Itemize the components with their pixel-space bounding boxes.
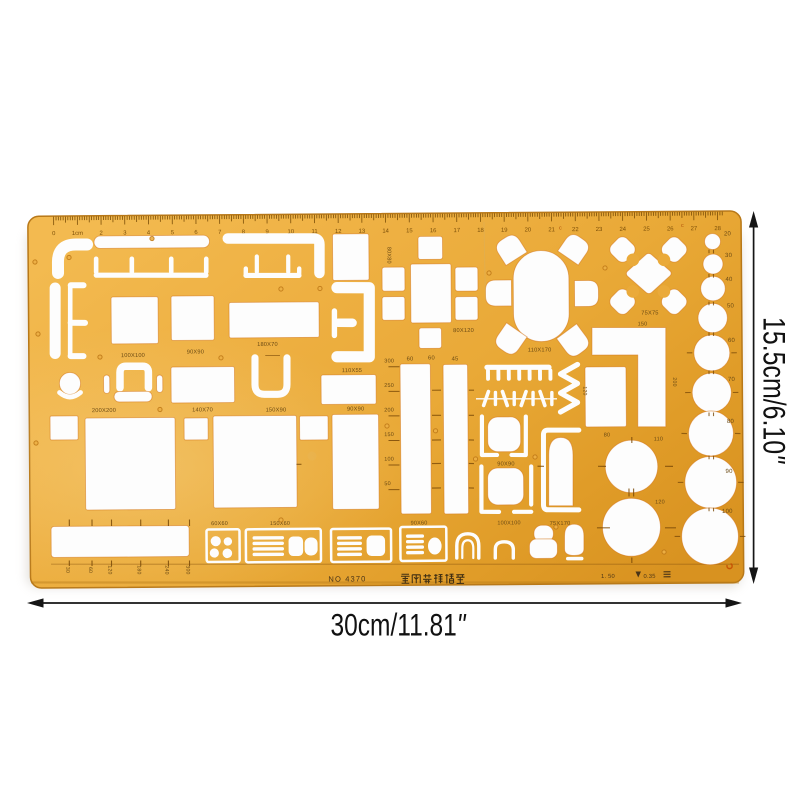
svg-text:17: 17 [454,228,461,234]
svg-text:90X90: 90X90 [497,461,514,467]
svg-text:100X100: 100X100 [497,520,520,526]
svg-text:15.5cm/6.10": 15.5cm/6.10" [757,317,793,464]
svg-text:300: 300 [184,565,190,574]
svg-text:45: 45 [452,356,459,362]
svg-text:200: 200 [384,408,394,414]
svg-text:19: 19 [501,228,508,234]
svg-text:100: 100 [384,457,394,463]
svg-text:27: 27 [691,226,698,232]
svg-text:21: 21 [548,227,555,233]
svg-text:50: 50 [384,481,391,487]
svg-text:NO 4370: NO 4370 [328,574,366,583]
svg-text:60: 60 [728,338,736,344]
svg-text:20: 20 [724,231,732,237]
svg-text:120: 120 [655,500,665,506]
svg-text:180: 180 [136,565,142,574]
svg-text:110: 110 [654,437,663,443]
svg-text:80X80: 80X80 [385,247,391,264]
svg-text:30cm/11.81": 30cm/11.81" [331,607,467,643]
svg-text:240: 240 [163,565,169,574]
svg-text:c: c [559,225,562,231]
svg-text:30: 30 [64,567,70,573]
svg-text:60X60: 60X60 [211,521,228,527]
svg-text:80: 80 [727,419,735,425]
svg-text:150X90: 150X90 [266,407,287,413]
svg-text:300: 300 [384,358,394,364]
svg-text:28: 28 [714,226,721,232]
svg-text:120: 120 [581,386,587,395]
svg-text:70: 70 [728,377,736,383]
svg-text:60: 60 [407,356,414,362]
svg-text:150: 150 [638,321,648,327]
svg-text:0.35: 0.35 [644,574,656,580]
svg-text:90X60: 90X60 [411,520,428,526]
svg-text:80X120: 80X120 [453,328,474,334]
svg-text:60: 60 [87,567,93,573]
svg-text:110X170: 110X170 [528,347,552,353]
svg-text:30: 30 [725,253,733,259]
svg-text:100X100: 100X100 [121,353,145,359]
svg-text:23: 23 [596,227,603,233]
svg-text:16: 16 [430,228,437,234]
svg-text:110X55: 110X55 [342,368,362,374]
svg-text:50: 50 [727,303,735,309]
svg-text:26: 26 [667,226,674,232]
svg-text:25: 25 [643,227,650,233]
svg-text:c: c [681,223,684,229]
svg-text:150: 150 [384,432,394,438]
svg-text:24: 24 [619,227,626,233]
svg-text:1. 50: 1. 50 [601,574,615,580]
svg-text:90X90: 90X90 [187,349,204,355]
svg-text:80: 80 [604,433,611,439]
svg-text:22: 22 [572,227,579,233]
svg-text:15: 15 [406,228,413,234]
svg-text:200: 200 [671,377,677,386]
svg-text:90X90: 90X90 [347,406,364,412]
svg-text:40: 40 [725,277,733,283]
svg-text:75X75: 75X75 [641,310,658,316]
svg-text:14: 14 [382,229,389,235]
svg-text:18: 18 [477,228,484,234]
svg-text:100: 100 [722,509,733,515]
svg-text:140X70: 140X70 [192,407,213,413]
svg-text:60: 60 [428,355,435,361]
svg-text:7: 7 [218,230,221,236]
svg-text:20: 20 [525,227,532,233]
svg-text:180X70: 180X70 [257,342,278,348]
svg-text:90: 90 [726,469,734,475]
svg-text:120: 120 [106,565,112,574]
svg-text:200X200: 200X200 [92,408,116,414]
svg-text:1cm: 1cm [72,231,83,237]
svg-text:250: 250 [384,383,394,389]
